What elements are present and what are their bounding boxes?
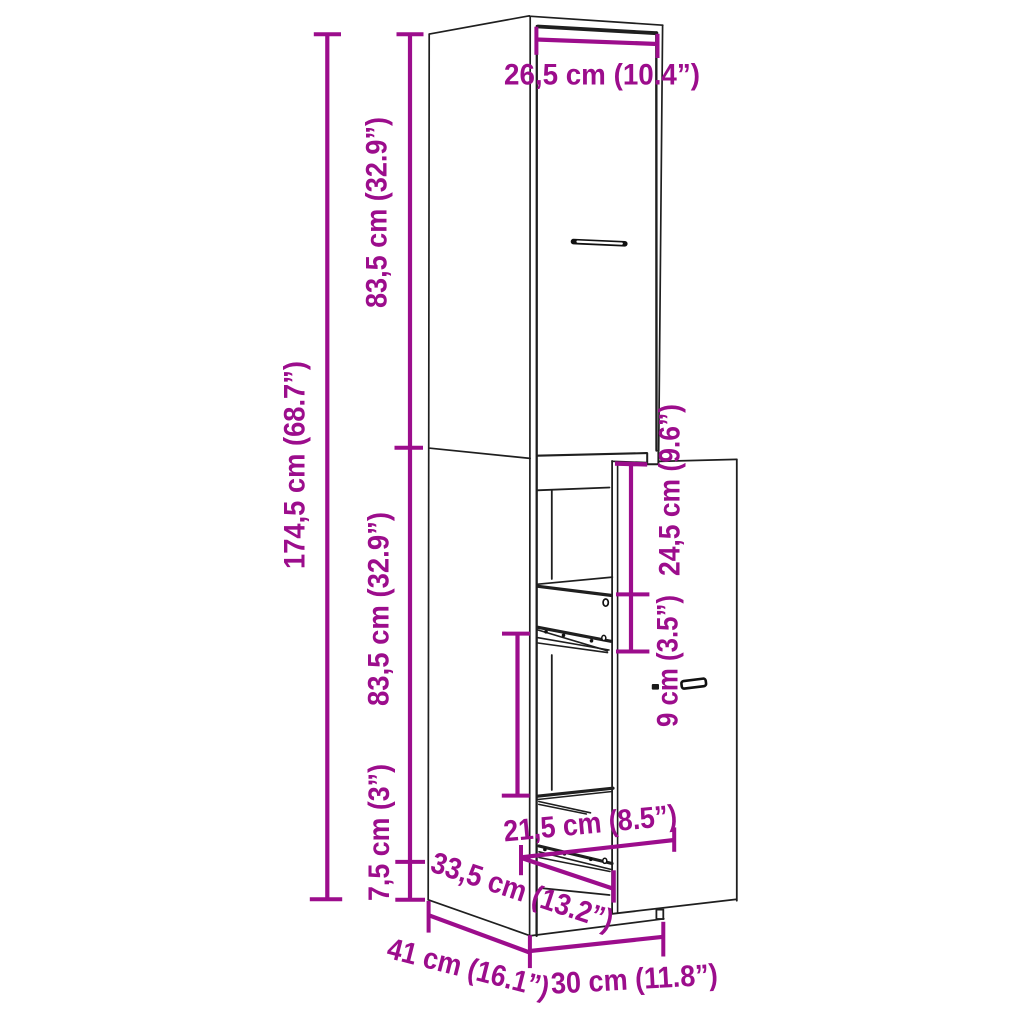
svg-text:24,5 cm (9.6”): 24,5 cm (9.6”) (654, 404, 687, 576)
svg-text:83,5 cm (32.9”): 83,5 cm (32.9”) (361, 117, 394, 308)
svg-text:7,5 cm (3”): 7,5 cm (3”) (363, 764, 396, 901)
svg-text:83,5 cm (32.9”): 83,5 cm (32.9”) (363, 512, 396, 706)
svg-text:9 cm (3.5”): 9 cm (3.5”) (652, 595, 685, 727)
svg-text:26,5 cm (10.4”): 26,5 cm (10.4”) (504, 59, 700, 92)
svg-text:174,5 cm (68.7”): 174,5 cm (68.7”) (279, 361, 312, 569)
